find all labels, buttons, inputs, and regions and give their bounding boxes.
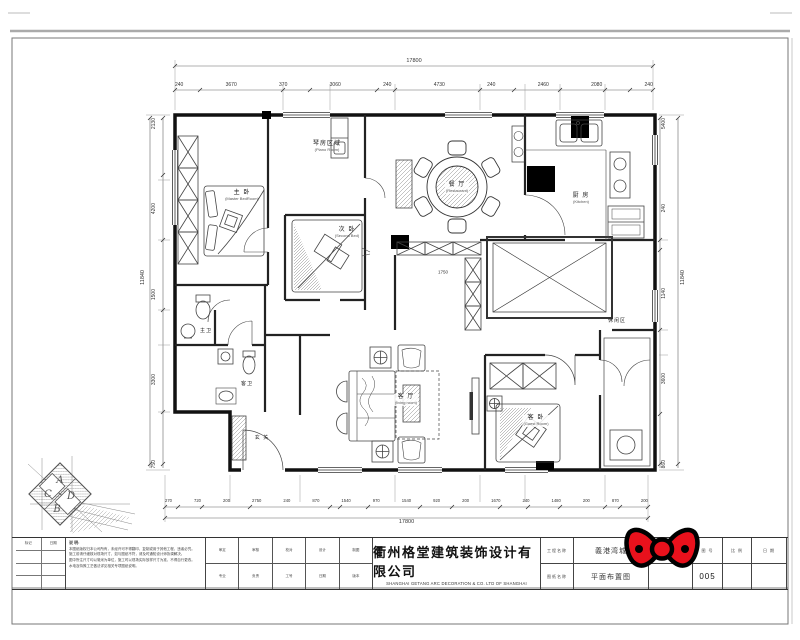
tv-cabinet: [472, 378, 479, 434]
lounge-chair: [337, 381, 348, 402]
balcony-doors: [600, 360, 650, 386]
balcony: [600, 338, 650, 466]
dimension-value: 240: [523, 499, 530, 503]
company-block: 衢州格堂建筑装饰设计有限公司 SHANGHAI GETANG ARC DECOR…: [372, 538, 540, 589]
room-label-dining: 餐 厅(Restaurant): [445, 182, 469, 194]
dimension-value: 240: [487, 83, 495, 88]
shoe-cabinet: [232, 416, 246, 460]
scale-cell: 比 例: [722, 538, 751, 589]
date-label: 日 期: [752, 538, 786, 564]
dimension-value: 5400: [662, 118, 667, 129]
room-label-entry: 玄 关: [255, 435, 269, 441]
dimension-value: 200: [641, 499, 648, 503]
room-label-bath-guest: 客卫: [241, 381, 253, 387]
dimension-value: 240: [175, 83, 183, 88]
guest-bedroom-furniture: [487, 355, 575, 462]
date-cell: 日 期: [751, 538, 787, 589]
kitchen-door: [525, 195, 565, 235]
dimension-value: 3600: [662, 373, 667, 384]
signoff-label: 审定: [206, 538, 238, 563]
signoff-label: 审核: [238, 538, 271, 563]
signoff-label: 负责: [238, 564, 271, 590]
room-label-piano: 琴房区域(Piano Room): [313, 141, 341, 153]
dimension-value: 4730: [434, 83, 445, 88]
wash-basin: [219, 391, 233, 401]
svg-text:B: B: [52, 504, 60, 515]
dim-left-segments: 2130420015003300750: [152, 118, 157, 468]
signoff-label: 校对: [272, 538, 305, 563]
bow-knot: [652, 540, 672, 559]
dimension-value: 240: [645, 83, 653, 88]
scale-label: 比 例: [723, 538, 751, 564]
dimension-value: 2460: [538, 83, 549, 88]
room-label-living: 客 厅(living room): [394, 394, 418, 406]
dimension-value: 750: [152, 460, 157, 468]
armchair: [398, 437, 425, 463]
dimension-value: 4200: [152, 203, 157, 214]
notes-lines: 本图纸版权归本公司所有，未经许可不得翻印、复制或用于其他工程，违者必究。施工前请…: [69, 547, 202, 570]
dimension-value: 1140: [662, 288, 667, 299]
dimension-value: 3060: [330, 83, 341, 88]
dimension-value: 240: [283, 499, 290, 503]
dimension-lines: [146, 60, 684, 522]
company-name-en: SHANGHAI GETANG ARC DECORATION & CO. LTD…: [386, 581, 527, 586]
room-label-master: 主 卧(Master BedRoom): [225, 190, 259, 202]
armchair: [398, 345, 425, 371]
dimension-value: 240: [662, 204, 667, 212]
dimension-value: 720: [194, 499, 201, 503]
lounge-chair: [337, 413, 348, 434]
room-label-leisure: 休闲区: [608, 318, 626, 324]
signoff-label: 日期: [305, 564, 338, 590]
notes-block: 说 明: 本图纸版权归本公司所有，未经许可不得翻印、复制或用于其他工程，违者必究…: [65, 538, 205, 589]
room-label-second: 次 卧(Second Bed): [335, 227, 359, 239]
signoff-row-2: 专业负责工号日期版本: [206, 564, 372, 590]
dim-left-total: 11840: [141, 270, 147, 285]
toilet: [196, 301, 210, 319]
revision-table: 标记 日期: [16, 538, 65, 589]
drawing-name-label: 图纸名称: [541, 564, 573, 589]
project-name-label: 工程名称: [541, 538, 573, 564]
tv: [470, 392, 474, 420]
dimension-value: 200: [583, 499, 590, 503]
dimension-value: 370: [279, 83, 287, 88]
signoff-label: 版本: [339, 564, 372, 590]
sofa: [349, 371, 395, 441]
dimension-value: 2080: [591, 83, 602, 88]
svg-text:D: D: [66, 491, 75, 502]
room-label-kitchen: 厨 房(Kitchen): [573, 193, 590, 205]
dimension-value: 860: [662, 460, 667, 468]
dim-bottom-total: 17800: [165, 520, 648, 526]
signoff-label: 专业: [206, 564, 238, 590]
lounge-area: [487, 237, 612, 318]
company-name-cn: 衢州格堂建筑装饰设计有限公司: [373, 542, 540, 580]
dim-top-total: 17800: [175, 59, 653, 65]
name-labels: 工程名称 图纸名称: [540, 538, 573, 589]
dim-right-segments: 540024011403600860: [662, 118, 667, 468]
room-label-bath-master: 主卫: [200, 328, 212, 334]
washer: [221, 352, 230, 361]
signoff-row-1: 审定审核校对设计制图: [206, 538, 372, 564]
svg-text:C: C: [44, 489, 52, 500]
notes-line: 水电及特殊工艺做法详见相关专项图纸说明。: [69, 564, 191, 569]
dimension-value: 3300: [152, 374, 157, 385]
notes-line: 施工前请仔细核对现场尺寸，如与图纸不符，请及时通知设计师协调解决。: [69, 552, 191, 557]
signoff-grid: 审定审核校对设计制图 专业负责工号日期版本: [205, 538, 372, 589]
signoff-label: 制图: [339, 538, 372, 563]
dimension-value: 1480: [552, 499, 561, 503]
dimension-value: 970: [373, 499, 380, 503]
dimension-value: 2130: [152, 118, 157, 129]
svg-text:A: A: [55, 475, 63, 486]
dimension-value: 1540: [402, 499, 411, 503]
inner-dimension: 1750: [438, 269, 448, 274]
dimension-value: 870: [312, 499, 319, 503]
dining-set: [413, 126, 525, 233]
dimension-value: 270: [165, 499, 172, 503]
dimension-value: 3670: [226, 83, 237, 88]
red-bow-stamp: [622, 518, 702, 578]
dimension-value: 200: [462, 499, 469, 503]
revision-header-date: 日期: [41, 538, 66, 551]
dimension-value: 870: [612, 499, 619, 503]
dimension-value: 2750: [252, 499, 261, 503]
dimension-value: 1670: [491, 499, 500, 503]
dimension-value: 200: [223, 499, 230, 503]
dimension-value: 240: [383, 83, 391, 88]
dim-bottom-segments: 2707202002750240870154097015409202001670…: [165, 499, 648, 503]
wash-basin: [181, 324, 195, 338]
revision-header-mark: 标记: [16, 538, 41, 551]
notes-title: 说 明:: [69, 540, 79, 545]
room-label-guest: 客 卧(Guest Room): [522, 415, 549, 427]
dimension-value: 920: [433, 499, 440, 503]
dim-top-segments: 24036703703060240473024024602080240: [175, 83, 653, 88]
guest-door: [545, 355, 575, 385]
toilet: [243, 356, 255, 374]
stove: [610, 152, 630, 198]
notes-line: 图中所注尺寸均以毫米为单位，施工时以现场实际放样尺寸为准，不得自行更改。: [69, 558, 191, 563]
signoff-label: 工号: [272, 564, 305, 590]
signoff-label: 设计: [305, 538, 338, 563]
dimension-value: 1500: [152, 289, 157, 300]
dimension-value: 1540: [341, 499, 350, 503]
dim-right-total: 11840: [681, 270, 687, 285]
